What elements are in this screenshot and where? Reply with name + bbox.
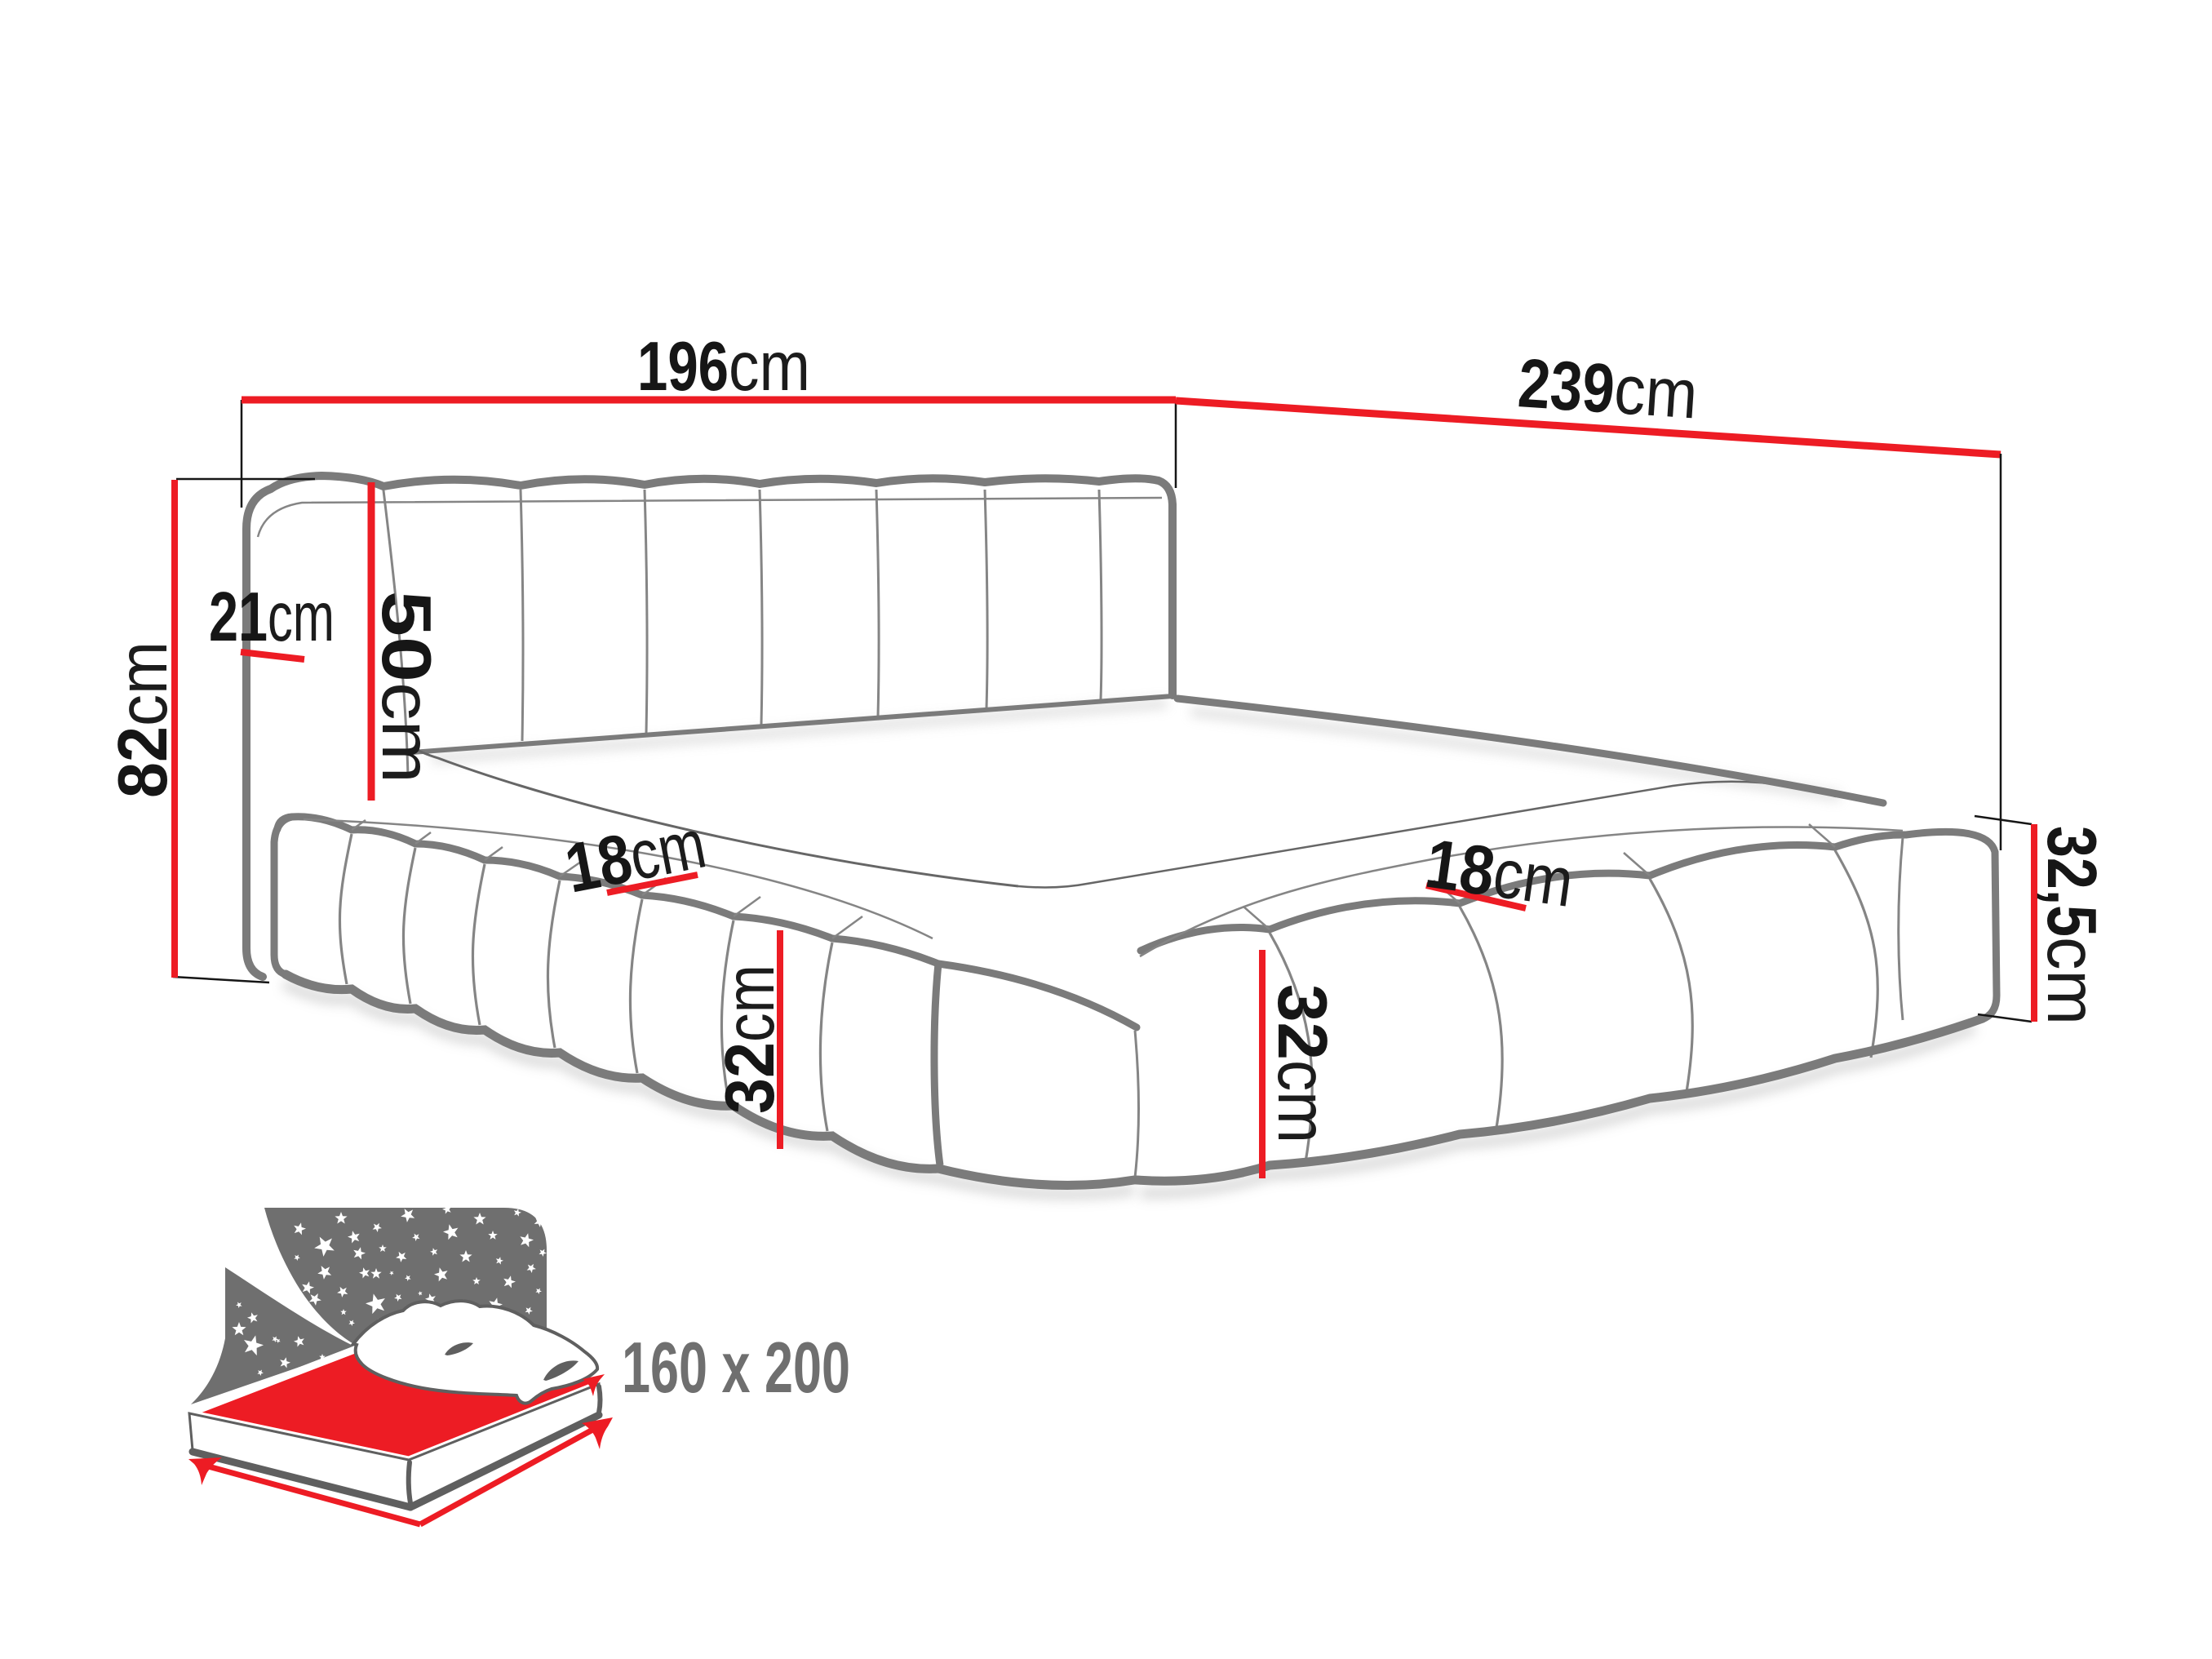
svg-text:32cm: 32cm xyxy=(1263,984,1341,1143)
svg-text:239cm: 239cm xyxy=(1516,344,1700,433)
svg-text:32cm: 32cm xyxy=(711,965,789,1114)
svg-text:196cm: 196cm xyxy=(637,328,810,406)
svg-text:50cm: 50cm xyxy=(367,591,445,783)
svg-text:21cm: 21cm xyxy=(209,579,335,656)
svg-text:160 x 200: 160 x 200 xyxy=(622,1327,850,1408)
svg-text:82cm: 82cm xyxy=(104,641,182,798)
svg-text:32,5cm: 32,5cm xyxy=(2032,826,2110,1025)
